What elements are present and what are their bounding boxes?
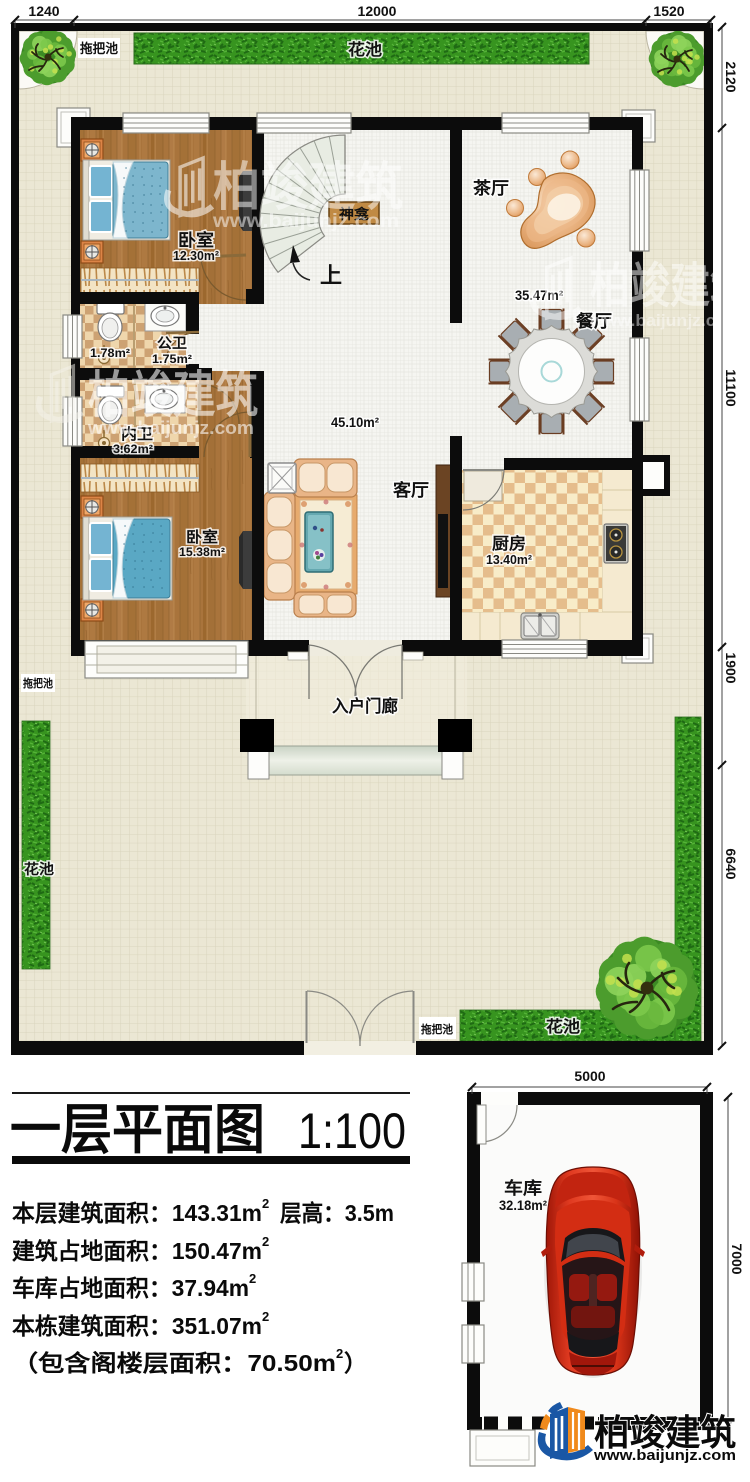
svg-text:卧室: 卧室 xyxy=(186,528,218,546)
svg-text:公卫: 公卫 xyxy=(157,335,187,351)
svg-text:花池: 花池 xyxy=(546,1017,580,1036)
svg-text:建筑占地面积：150.47m: 建筑占地面积：150.47m xyxy=(12,1238,262,1264)
svg-text:2: 2 xyxy=(262,1234,269,1249)
svg-text:客厅: 客厅 xyxy=(392,480,429,500)
svg-text:茶厅: 茶厅 xyxy=(473,178,509,198)
svg-text:35.47m²: 35.47m² xyxy=(515,287,563,303)
svg-text:3.62m²: 3.62m² xyxy=(113,442,153,456)
svg-text:6640: 6640 xyxy=(723,848,739,879)
svg-text:上: 上 xyxy=(320,263,342,288)
svg-text:www.baijunjz.com: www.baijunjz.com xyxy=(212,211,399,232)
svg-text:www.baijunjz.com: www.baijunjz.com xyxy=(589,311,742,330)
svg-text:www.baijunjz.com: www.baijunjz.com xyxy=(87,418,254,438)
svg-text:2120: 2120 xyxy=(723,61,739,92)
svg-text:1900: 1900 xyxy=(723,652,739,683)
svg-text:12.30m²: 12.30m² xyxy=(173,248,220,263)
svg-text:柏竣建筑: 柏竣建筑 xyxy=(88,367,258,423)
svg-text:15.38m²: 15.38m² xyxy=(179,545,225,559)
svg-text:32.18m²: 32.18m² xyxy=(499,1197,547,1213)
svg-text:www.baijunjz.com: www.baijunjz.com xyxy=(593,1447,736,1464)
svg-text:11100: 11100 xyxy=(723,369,739,407)
svg-text:花池: 花池 xyxy=(348,40,382,59)
svg-text:12000: 12000 xyxy=(358,3,397,19)
svg-text:1520: 1520 xyxy=(653,3,684,19)
svg-text:入户门廊: 入户门廊 xyxy=(332,696,398,716)
svg-text:13.40m²: 13.40m² xyxy=(486,552,533,567)
svg-text:本层建筑面积：143.31m: 本层建筑面积：143.31m xyxy=(12,1200,262,1226)
svg-text:1.78m²: 1.78m² xyxy=(90,346,130,360)
svg-text:1240: 1240 xyxy=(28,3,59,19)
svg-text:一层平面图: 一层平面图 xyxy=(10,1100,265,1160)
svg-text:2: 2 xyxy=(262,1196,269,1211)
svg-text:拖把池: 拖把池 xyxy=(80,41,118,56)
svg-text:柏竣建筑: 柏竣建筑 xyxy=(213,159,403,217)
svg-text:花池: 花池 xyxy=(24,861,54,877)
svg-text:）: ） xyxy=(344,1350,367,1376)
svg-text:拖把池: 拖把池 xyxy=(421,1022,453,1036)
svg-text:本栋建筑面积：351.07m: 本栋建筑面积：351.07m xyxy=(12,1313,262,1339)
svg-text:柏竣建筑: 柏竣建筑 xyxy=(590,260,750,313)
svg-text:2: 2 xyxy=(262,1309,269,1324)
svg-text:1:100: 1:100 xyxy=(298,1103,406,1159)
svg-text:车库: 车库 xyxy=(504,1178,542,1198)
svg-text:45.10m²: 45.10m² xyxy=(331,414,379,430)
svg-text:卧室: 卧室 xyxy=(178,230,214,250)
svg-text:7000: 7000 xyxy=(729,1243,745,1274)
svg-text:5000: 5000 xyxy=(574,1068,605,1084)
svg-text:1.75m²: 1.75m² xyxy=(152,352,192,366)
svg-text:2: 2 xyxy=(336,1346,343,1361)
svg-text:2: 2 xyxy=(249,1271,256,1286)
svg-text:（包含阁楼层面积：70.50m: （包含阁楼层面积：70.50m xyxy=(12,1350,336,1376)
svg-text:层高：3.5m: 层高：3.5m xyxy=(280,1200,394,1226)
svg-text:车库占地面积：37.94m: 车库占地面积：37.94m xyxy=(12,1275,249,1301)
svg-text:拖把池: 拖把池 xyxy=(23,676,53,690)
svg-text:厨房: 厨房 xyxy=(492,534,526,553)
